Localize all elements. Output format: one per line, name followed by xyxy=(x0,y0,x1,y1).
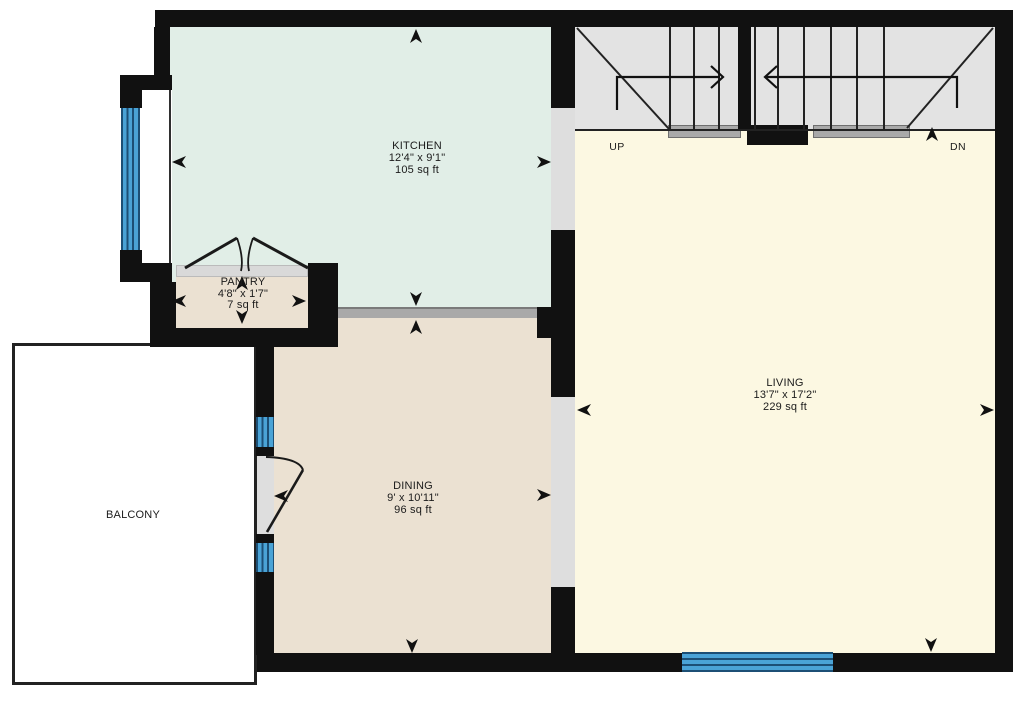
stairs-down-label: DN xyxy=(950,141,966,153)
kitchen-arrow-right xyxy=(537,156,551,168)
dining-arrow-down xyxy=(406,639,418,653)
dining-arrow-right xyxy=(537,489,551,501)
pantry-area: 7 sq ft xyxy=(218,300,268,312)
dining-area: 96 sq ft xyxy=(387,504,439,516)
kitchen-dimensions: 12'4" x 9'1" xyxy=(389,152,446,164)
stairs-down-direction-arrow xyxy=(765,66,957,108)
living-dimensions: 13'7" x 17'2" xyxy=(754,389,817,401)
living-arrow-right xyxy=(980,404,994,416)
kitchen-arrow-down xyxy=(410,292,422,306)
living-name: LIVING xyxy=(754,377,817,389)
pantry-arrow-right xyxy=(292,295,306,307)
pantry-name: PANTRY xyxy=(218,277,268,289)
kitchen-area: 105 sq ft xyxy=(389,164,446,176)
living-label: LIVING 13'7" x 17'2" 229 sq ft xyxy=(754,377,817,413)
pantry-double-door xyxy=(185,238,308,271)
living-arrow-down xyxy=(925,638,937,652)
kitchen-arrow-left xyxy=(172,156,186,168)
kitchen-arrow-up xyxy=(410,29,422,43)
dining-dimensions: 9' x 10'11" xyxy=(387,492,439,504)
balcony-name: BALCONY xyxy=(106,509,160,521)
pantry-arrow-left xyxy=(172,295,186,307)
living-arrow-left xyxy=(577,404,591,416)
dining-label: DINING 9' x 10'11" 96 sq ft xyxy=(387,480,439,516)
pantry-arrow-down xyxy=(236,310,248,324)
dining-arrow-left xyxy=(274,490,288,502)
kitchen-name: KITCHEN xyxy=(389,140,446,152)
living-area: 229 sq ft xyxy=(754,401,817,413)
kitchen-label: KITCHEN 12'4" x 9'1" 105 sq ft xyxy=(389,140,446,176)
floor-plan: KITCHEN 12'4" x 9'1" 105 sq ft PANTRY 4'… xyxy=(0,0,1024,702)
plan-linework xyxy=(0,0,1024,702)
balcony-label: BALCONY xyxy=(106,509,160,521)
dining-arrow-up xyxy=(410,320,422,334)
dining-name: DINING xyxy=(387,480,439,492)
pantry-label: PANTRY 4'8" x 1'7" 7 sq ft xyxy=(218,277,268,312)
stairs-up-label: UP xyxy=(609,141,624,153)
